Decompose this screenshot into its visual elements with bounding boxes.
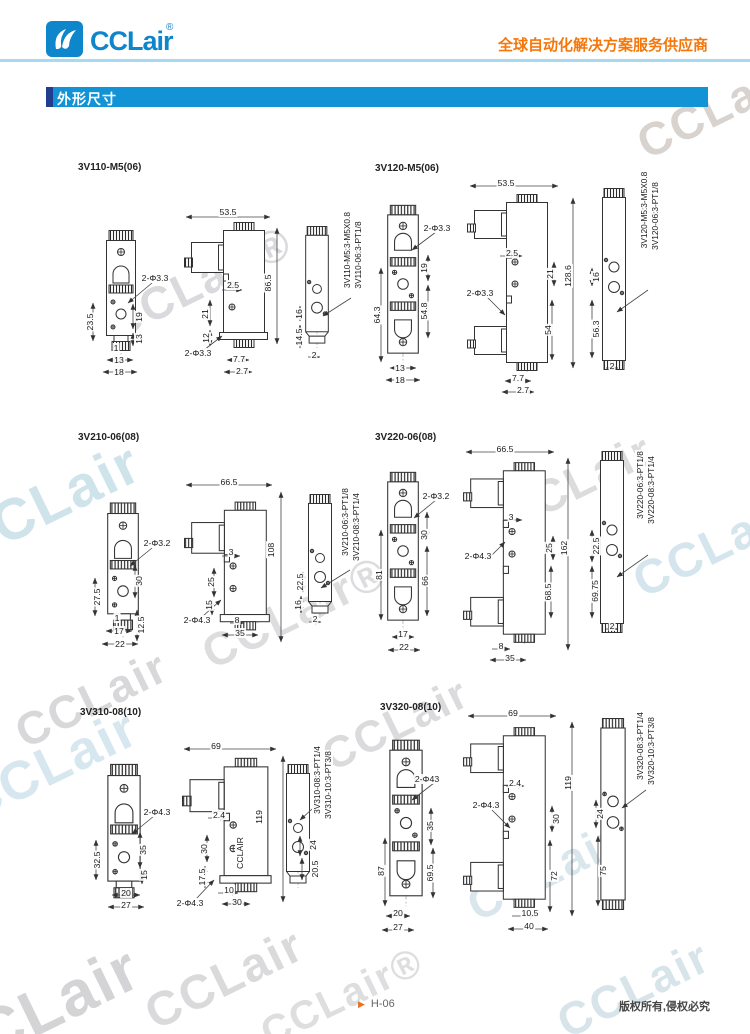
dimension-label: 32.5	[92, 851, 102, 870]
dimension-label: 68.5	[543, 583, 553, 602]
dimension-label: 30	[231, 897, 243, 907]
dimension-label: 20	[392, 908, 404, 918]
group-title-3v220: 3V220-06(08)	[375, 432, 436, 443]
dimension-label: 2.5	[505, 248, 519, 258]
dimension-label: 2-Φ3.3	[466, 288, 495, 298]
dimension-label: 40	[523, 921, 535, 931]
dimension-label: 119	[563, 775, 573, 791]
dimension-label: 69	[210, 741, 222, 751]
group-title-3v310: 3V310-08(10)	[80, 707, 141, 718]
dimension-label: 54	[543, 324, 553, 336]
dimension-label: 2.7	[235, 366, 249, 376]
dimension-label: 25	[206, 576, 216, 588]
dimension-label: 56.3	[591, 320, 601, 339]
dimension-label: 3V210-06:3-PT1/8	[340, 487, 350, 557]
dimension-label: 54.8	[419, 302, 429, 321]
dimension-labels-layer: 2-Φ3.323.519131131853.586.52.521122-Φ3.3…	[0, 0, 750, 1034]
dimension-label: 13	[394, 363, 406, 373]
page-marker-icon: ▶	[358, 999, 365, 1009]
dimension-label: 22	[398, 642, 410, 652]
dimension-label: CCLAIR	[235, 836, 245, 870]
dimension-label: 22.5	[591, 537, 601, 556]
dimension-label: 3V310-08:3-PT1/4	[312, 745, 322, 815]
dimension-label: 108	[266, 542, 276, 559]
dimension-label: 20.5	[310, 860, 320, 879]
group-title-3v320: 3V320-08(10)	[380, 702, 441, 713]
dimension-label: 13	[113, 355, 125, 365]
dimension-label: 2.4	[212, 810, 226, 820]
dimension-label: 1	[114, 613, 121, 623]
dimension-label: 2-Φ4.3	[472, 800, 501, 810]
group-title-3v210: 3V210-06(08)	[78, 432, 139, 443]
dimension-label: 16	[591, 271, 601, 283]
dimension-label: 69.75	[590, 579, 600, 603]
dimension-label: 3V110-M5:3-M5X0.8	[342, 211, 352, 289]
dimension-label: 7.7	[511, 373, 525, 383]
dim-lines-3v310	[96, 749, 322, 907]
dimension-label: 35	[504, 653, 516, 663]
dimension-label: 119	[254, 809, 264, 825]
watermark-text: CCLair	[315, 668, 477, 781]
dimension-label: 66.5	[496, 444, 515, 454]
dimension-label: 3V120-M5:3-M5X0.8	[639, 171, 649, 250]
dimension-label: 30	[134, 575, 144, 587]
copyright-text: 版权所有,侵权必究	[619, 998, 710, 1014]
valve-dimension-drawings	[0, 0, 750, 1034]
brand-logo-icon	[46, 21, 83, 57]
header-divider	[0, 59, 750, 62]
dimension-label: 27.5	[92, 588, 102, 607]
dimension-label: 21	[545, 268, 555, 280]
dimension-label: 2	[311, 350, 318, 360]
dimension-label: 3	[228, 547, 235, 557]
dimension-label: 3V120-06:3-PT1/8	[650, 181, 660, 251]
catalog-page: CCLair®CCLair®CCLairCCLairCCLair®CCLairC…	[0, 0, 750, 1034]
header-tagline: 全球自动化解决方案服务供应商	[498, 34, 708, 55]
dimension-label: 87	[376, 865, 386, 877]
dimension-label: 2-Φ43	[414, 774, 440, 784]
dimension-label: 18	[113, 367, 125, 377]
section-title: 外形尺寸	[57, 89, 117, 109]
dimension-label: 19	[419, 262, 429, 274]
group-title-3v120: 3V120-M5(06)	[375, 163, 439, 174]
dimension-label: 35	[138, 844, 148, 856]
watermark-text: CCLair	[548, 929, 718, 1034]
watermark-text: CCLair	[0, 429, 152, 578]
dimension-label: 2.4	[508, 778, 522, 788]
dimension-label: 15	[139, 869, 149, 881]
dimension-label: 2-Φ3.2	[422, 491, 451, 501]
dim-lines-3v120	[381, 186, 648, 392]
dimension-label: 2-Φ4.3	[143, 807, 172, 817]
dimension-label: 66.5	[220, 477, 239, 487]
dimension-label: 20	[120, 888, 132, 898]
dimension-label: 66	[420, 575, 430, 587]
dimension-label: 17	[113, 626, 125, 636]
dimension-label: 30	[551, 813, 561, 825]
watermark-text: CCLair	[625, 486, 750, 610]
dimension-label: 2	[609, 361, 616, 371]
dimension-label: 2-Φ3.3	[423, 223, 452, 233]
dimension-label: 18	[394, 375, 406, 385]
dimension-label: 128.6	[563, 264, 573, 288]
dimension-label: 12	[201, 332, 211, 344]
watermark-text: CCLair®	[98, 214, 300, 350]
dimension-label: 3V110-06:3-PT1/8	[353, 220, 363, 289]
dimension-label: 15	[204, 599, 214, 611]
dimension-label: 14.5	[294, 328, 304, 347]
registered-mark: ®	[166, 22, 173, 33]
dimension-label: 64.3	[372, 306, 382, 325]
dimension-label: 30	[419, 529, 429, 541]
dimension-label: 16	[294, 308, 304, 320]
dimension-label: 162	[559, 540, 569, 557]
brand-name: CCLair	[90, 26, 173, 57]
dimension-label: 53.5	[219, 207, 238, 217]
dimension-label: 69.5	[425, 864, 435, 883]
dimension-label: 3V320-08:3-PT1/4	[635, 711, 645, 781]
watermark-text: CCLair	[458, 812, 628, 932]
dimension-label: 25	[544, 542, 554, 554]
dimension-label: 10	[223, 885, 235, 895]
page-number-text: H-06	[371, 998, 395, 1010]
watermark-text: CCLair	[491, 422, 661, 542]
dimension-label: 30	[199, 843, 209, 855]
dimension-label: 7.7	[232, 354, 246, 364]
dimension-label: 53.5	[497, 178, 516, 188]
dimension-label: 2	[609, 621, 616, 631]
dimension-label: 17.5	[197, 868, 207, 887]
dimension-label: 2-Φ3.2	[143, 538, 172, 548]
dimension-label: 23.5	[85, 313, 95, 332]
dimension-label: 2-Φ3.3	[184, 348, 213, 358]
dimension-label: 2-Φ4.3	[464, 551, 493, 561]
dimension-label: 35	[425, 820, 435, 832]
section-bar: 外形尺寸	[46, 87, 708, 107]
dimension-label: 17	[397, 629, 409, 639]
page-number: ▶H-06	[358, 998, 395, 1010]
dimension-label: 27	[120, 900, 132, 910]
dimension-label: 22	[114, 639, 126, 649]
dimension-label: 24	[308, 839, 318, 851]
dimension-label: 2.7	[516, 385, 530, 395]
dimension-label: 12.5	[136, 616, 146, 635]
section-bar-notch	[46, 87, 53, 107]
watermark-text: CCLair®	[193, 544, 395, 680]
group-title-3v110: 3V110-M5(06)	[78, 162, 141, 173]
watermark-text: CCLair	[0, 930, 152, 1034]
dimension-label: 8	[498, 641, 505, 651]
dimension-label: 69	[507, 708, 519, 718]
dimension-label: 27	[392, 922, 404, 932]
dimension-label: 3V320-10:3-PT3/8	[646, 716, 656, 786]
dimension-label: 2-Φ4.3	[176, 898, 205, 908]
